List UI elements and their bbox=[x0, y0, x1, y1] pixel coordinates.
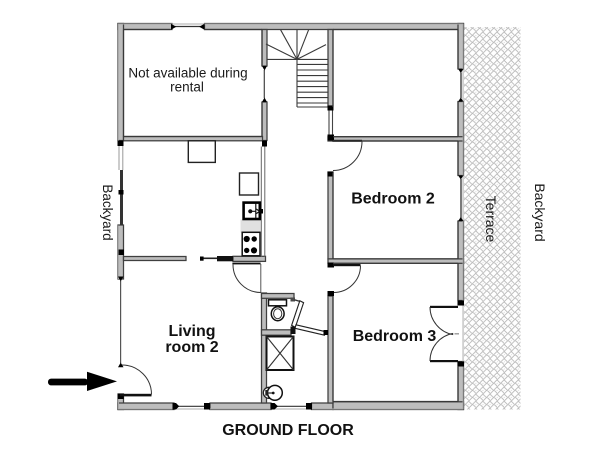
svg-text:GROUND FLOOR: GROUND FLOOR bbox=[222, 422, 354, 439]
svg-text:rental: rental bbox=[170, 80, 204, 95]
svg-text:Bedroom 3: Bedroom 3 bbox=[353, 328, 437, 345]
svg-text:Backyard: Backyard bbox=[100, 184, 115, 240]
svg-text:Not available during: Not available during bbox=[128, 66, 247, 81]
svg-text:Terrace: Terrace bbox=[483, 196, 499, 243]
svg-text:Backyard: Backyard bbox=[532, 183, 548, 241]
svg-text:Bedroom 2: Bedroom 2 bbox=[351, 191, 435, 208]
svg-text:room 2: room 2 bbox=[165, 339, 218, 356]
svg-text:Living: Living bbox=[168, 323, 215, 340]
